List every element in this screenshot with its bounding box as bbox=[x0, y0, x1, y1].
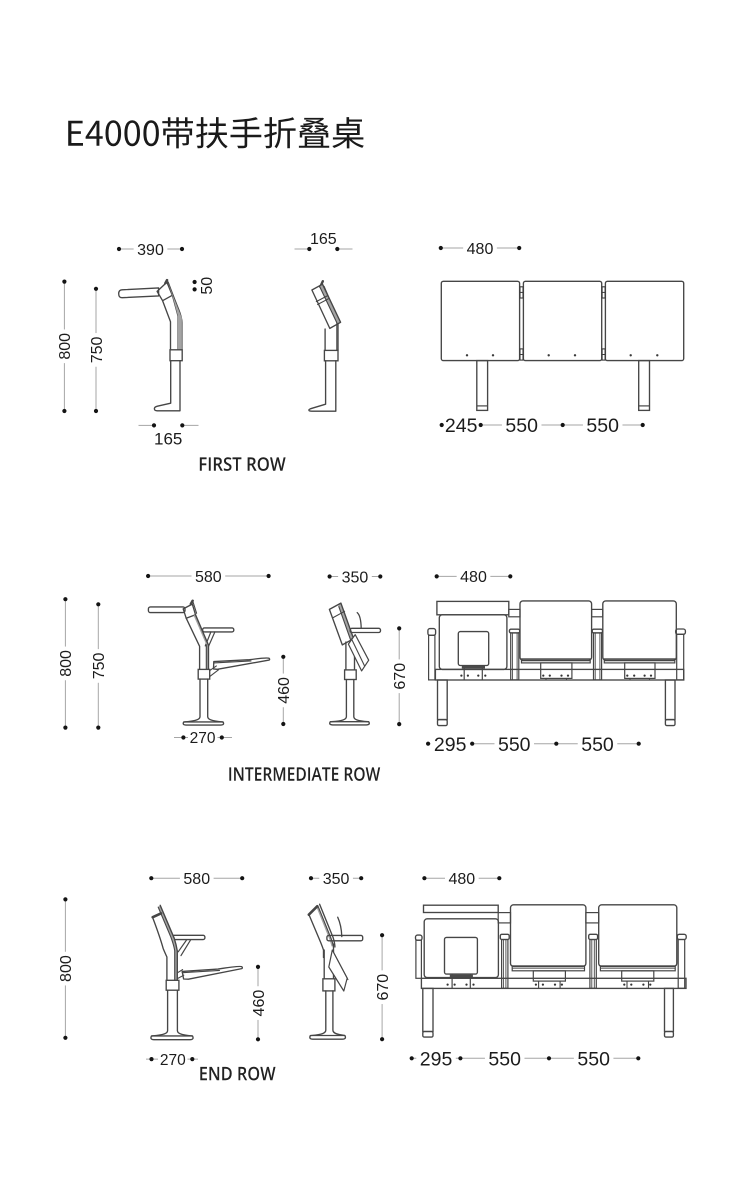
svg-text:50: 50 bbox=[199, 277, 216, 295]
svg-text:460: 460 bbox=[251, 990, 268, 1017]
svg-text:750: 750 bbox=[89, 336, 106, 363]
svg-text:480: 480 bbox=[467, 241, 494, 258]
svg-text:580: 580 bbox=[183, 871, 210, 888]
svg-text:550: 550 bbox=[586, 415, 619, 437]
svg-text:670: 670 bbox=[392, 663, 409, 690]
svg-text:295: 295 bbox=[434, 734, 467, 756]
svg-text:800: 800 bbox=[57, 333, 74, 360]
svg-text:550: 550 bbox=[577, 1048, 610, 1070]
svg-text:350: 350 bbox=[323, 871, 350, 888]
svg-text:165: 165 bbox=[154, 429, 182, 448]
svg-text:460: 460 bbox=[276, 677, 293, 704]
svg-text:390: 390 bbox=[137, 242, 164, 259]
svg-text:580: 580 bbox=[195, 569, 222, 586]
svg-text:480: 480 bbox=[448, 871, 475, 888]
svg-text:670: 670 bbox=[375, 974, 392, 1001]
svg-text:550: 550 bbox=[581, 734, 614, 756]
svg-text:295: 295 bbox=[420, 1048, 453, 1070]
svg-text:800: 800 bbox=[58, 955, 75, 982]
svg-text:480: 480 bbox=[460, 569, 487, 586]
svg-text:270: 270 bbox=[190, 730, 216, 747]
svg-text:800: 800 bbox=[58, 650, 75, 677]
svg-text:550: 550 bbox=[498, 734, 531, 756]
svg-text:550: 550 bbox=[488, 1048, 521, 1070]
svg-text:750: 750 bbox=[91, 653, 108, 680]
svg-text:550: 550 bbox=[505, 415, 538, 437]
svg-text:165: 165 bbox=[310, 231, 337, 248]
svg-text:350: 350 bbox=[342, 569, 369, 586]
svg-text:270: 270 bbox=[160, 1052, 186, 1069]
svg-text:245: 245 bbox=[445, 415, 478, 437]
